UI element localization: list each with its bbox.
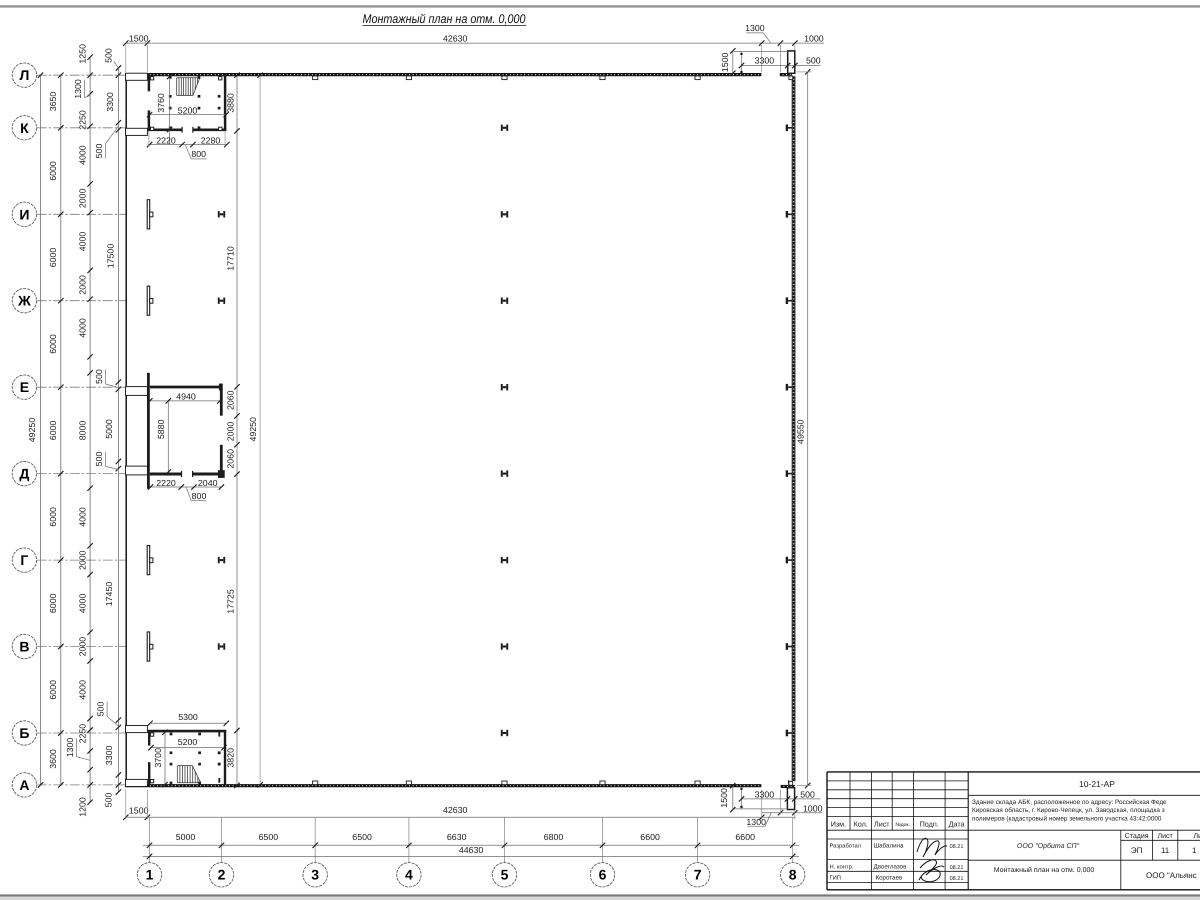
svg-text:Б: Б [19, 725, 29, 741]
svg-text:42630: 42630 [443, 34, 468, 44]
svg-text:08.21: 08.21 [950, 865, 964, 871]
svg-text:1300: 1300 [746, 817, 766, 827]
svg-text:2220: 2220 [156, 478, 176, 488]
svg-text:4940: 4940 [176, 391, 196, 401]
svg-text:6600: 6600 [640, 832, 660, 842]
svg-text:08.21: 08.21 [950, 876, 964, 882]
svg-text:Лист: Лист [1157, 833, 1173, 840]
svg-text:полимеров (кадастровый номер з: полимеров (кадастровый номер земельного … [972, 815, 1162, 822]
svg-text:Г: Г [20, 552, 28, 568]
svg-text:49250: 49250 [248, 417, 258, 442]
svg-text:Лист: Лист [874, 819, 890, 828]
svg-text:Кол.: Кол. [854, 819, 868, 828]
svg-text:1200: 1200 [78, 797, 88, 817]
svg-text:2250: 2250 [78, 110, 88, 130]
svg-text:И: И [19, 206, 29, 222]
svg-text:2000: 2000 [78, 275, 88, 295]
svg-text:8000: 8000 [78, 421, 88, 441]
svg-text:4000: 4000 [78, 507, 88, 527]
svg-text:2: 2 [218, 867, 226, 883]
svg-text:Монтажный план на отм. 0,000: Монтажный план на отм. 0,000 [363, 12, 526, 26]
svg-text:3650: 3650 [48, 92, 58, 112]
svg-text:5200: 5200 [178, 737, 198, 747]
svg-text:2000: 2000 [226, 422, 236, 442]
svg-text:ГИП: ГИП [830, 876, 841, 882]
svg-text:Ж: Ж [17, 293, 31, 309]
svg-text:6000: 6000 [48, 507, 58, 527]
svg-text:2280: 2280 [201, 135, 221, 145]
svg-text:Монтажный план на отм. 0,000: Монтажный план на отм. 0,000 [994, 866, 1095, 874]
svg-text:4000: 4000 [78, 680, 88, 700]
svg-text:6000: 6000 [48, 593, 58, 613]
svg-text:1300: 1300 [745, 23, 765, 33]
svg-text:ЭП: ЭП [1131, 846, 1143, 855]
svg-text:3300: 3300 [105, 92, 115, 112]
svg-text:6000: 6000 [48, 161, 58, 181]
svg-text:4: 4 [405, 867, 413, 883]
svg-text:10-21-АР: 10-21-АР [1079, 779, 1115, 789]
svg-text:49550: 49550 [796, 419, 806, 444]
svg-text:500: 500 [94, 144, 104, 159]
svg-text:2220: 2220 [156, 135, 176, 145]
svg-text:8: 8 [789, 867, 797, 883]
svg-text:Коротаев: Коротаев [876, 875, 903, 882]
svg-text:6000: 6000 [48, 334, 58, 354]
svg-text:17500: 17500 [105, 244, 115, 269]
svg-text:1: 1 [146, 867, 154, 883]
svg-text:3300: 3300 [104, 746, 114, 766]
svg-text:Шабалина: Шабалина [874, 843, 904, 850]
svg-text:Л: Л [19, 67, 29, 83]
svg-text:1300: 1300 [65, 738, 75, 758]
svg-text:Изм.: Изм. [831, 819, 846, 828]
svg-text:1500: 1500 [719, 788, 729, 808]
svg-text:Здание склада АБК, расположенн: Здание склада АБК, расположенное по адре… [972, 799, 1167, 806]
svg-text:2040: 2040 [198, 478, 218, 488]
svg-text:6630: 6630 [447, 832, 467, 842]
svg-text:500: 500 [96, 702, 106, 717]
svg-text:4000: 4000 [78, 232, 88, 252]
svg-text:1: 1 [1192, 846, 1197, 855]
svg-text:6500: 6500 [259, 832, 279, 842]
svg-text:11: 11 [1161, 846, 1170, 855]
svg-text:5000: 5000 [104, 419, 114, 439]
svg-text:ООО "Орбита СП": ООО "Орбита СП" [1017, 842, 1080, 850]
svg-text:17725: 17725 [226, 589, 236, 614]
svg-text:№док.: №док. [895, 822, 910, 828]
svg-text:Дата: Дата [949, 819, 965, 828]
svg-text:1300: 1300 [73, 79, 83, 99]
svg-text:Стадия: Стадия [1125, 833, 1149, 840]
svg-text:500: 500 [806, 56, 821, 66]
svg-text:2060: 2060 [226, 449, 236, 469]
svg-text:6800: 6800 [544, 832, 564, 842]
svg-text:49250: 49250 [27, 418, 37, 443]
svg-text:Двоеглазов: Двоеглазов [874, 864, 908, 871]
svg-text:1500: 1500 [720, 53, 730, 73]
svg-text:5: 5 [501, 867, 509, 883]
svg-text:42630: 42630 [443, 805, 468, 815]
svg-text:К: К [20, 120, 29, 136]
svg-text:6: 6 [599, 867, 607, 883]
svg-text:1000: 1000 [803, 804, 823, 814]
svg-text:5880: 5880 [156, 419, 166, 439]
svg-text:Подп.: Подп. [920, 819, 939, 828]
svg-text:ООО "Альянс: ООО "Альянс [1146, 871, 1197, 880]
svg-text:5300: 5300 [178, 712, 198, 722]
svg-text:7: 7 [694, 867, 702, 883]
svg-text:17450: 17450 [104, 582, 114, 607]
svg-text:6500: 6500 [352, 832, 372, 842]
svg-text:3600: 3600 [48, 749, 58, 769]
svg-text:4000: 4000 [78, 318, 88, 338]
svg-text:2000: 2000 [78, 550, 88, 570]
svg-text:5200: 5200 [178, 106, 198, 116]
svg-text:17710: 17710 [226, 246, 236, 271]
svg-text:Д: Д [19, 466, 29, 482]
svg-text:1500: 1500 [129, 805, 149, 815]
svg-text:Разработал: Разработал [830, 843, 862, 850]
svg-text:800: 800 [192, 491, 207, 501]
svg-text:6000: 6000 [48, 680, 58, 700]
svg-text:44630: 44630 [459, 845, 484, 855]
svg-text:Н. контр.: Н. контр. [830, 865, 854, 871]
svg-text:3300: 3300 [755, 790, 775, 800]
svg-text:1250: 1250 [78, 44, 88, 64]
svg-text:1500: 1500 [129, 34, 149, 44]
svg-text:3700: 3700 [153, 748, 163, 768]
svg-text:500: 500 [800, 790, 815, 800]
svg-text:500: 500 [104, 793, 114, 808]
svg-text:Ли: Ли [1194, 833, 1200, 840]
svg-text:500: 500 [94, 369, 104, 384]
svg-text:4000: 4000 [78, 594, 88, 614]
svg-text:500: 500 [103, 48, 113, 63]
svg-text:2250: 2250 [78, 724, 88, 744]
svg-text:2000: 2000 [78, 188, 88, 208]
svg-text:3820: 3820 [226, 748, 236, 768]
svg-text:А: А [19, 777, 29, 793]
svg-text:08.21: 08.21 [950, 844, 964, 850]
svg-text:2060: 2060 [226, 390, 236, 410]
svg-text:6000: 6000 [48, 248, 58, 268]
svg-text:500: 500 [94, 452, 104, 467]
svg-text:3880: 3880 [226, 93, 236, 113]
svg-text:5000: 5000 [176, 832, 196, 842]
svg-text:В: В [19, 639, 29, 655]
svg-text:Е: Е [20, 379, 29, 395]
svg-text:3300: 3300 [755, 56, 775, 66]
svg-text:4000: 4000 [78, 145, 88, 165]
svg-text:800: 800 [191, 149, 206, 159]
svg-text:6600: 6600 [735, 832, 755, 842]
svg-text:1000: 1000 [804, 34, 824, 44]
svg-text:3: 3 [311, 867, 319, 883]
svg-text:2000: 2000 [78, 637, 88, 657]
svg-text:Кировская область, г. Кирово-Ч: Кировская область, г. Кирово-Чепецк, ул.… [972, 807, 1165, 814]
svg-text:6000: 6000 [48, 421, 58, 441]
svg-text:3760: 3760 [156, 93, 166, 113]
